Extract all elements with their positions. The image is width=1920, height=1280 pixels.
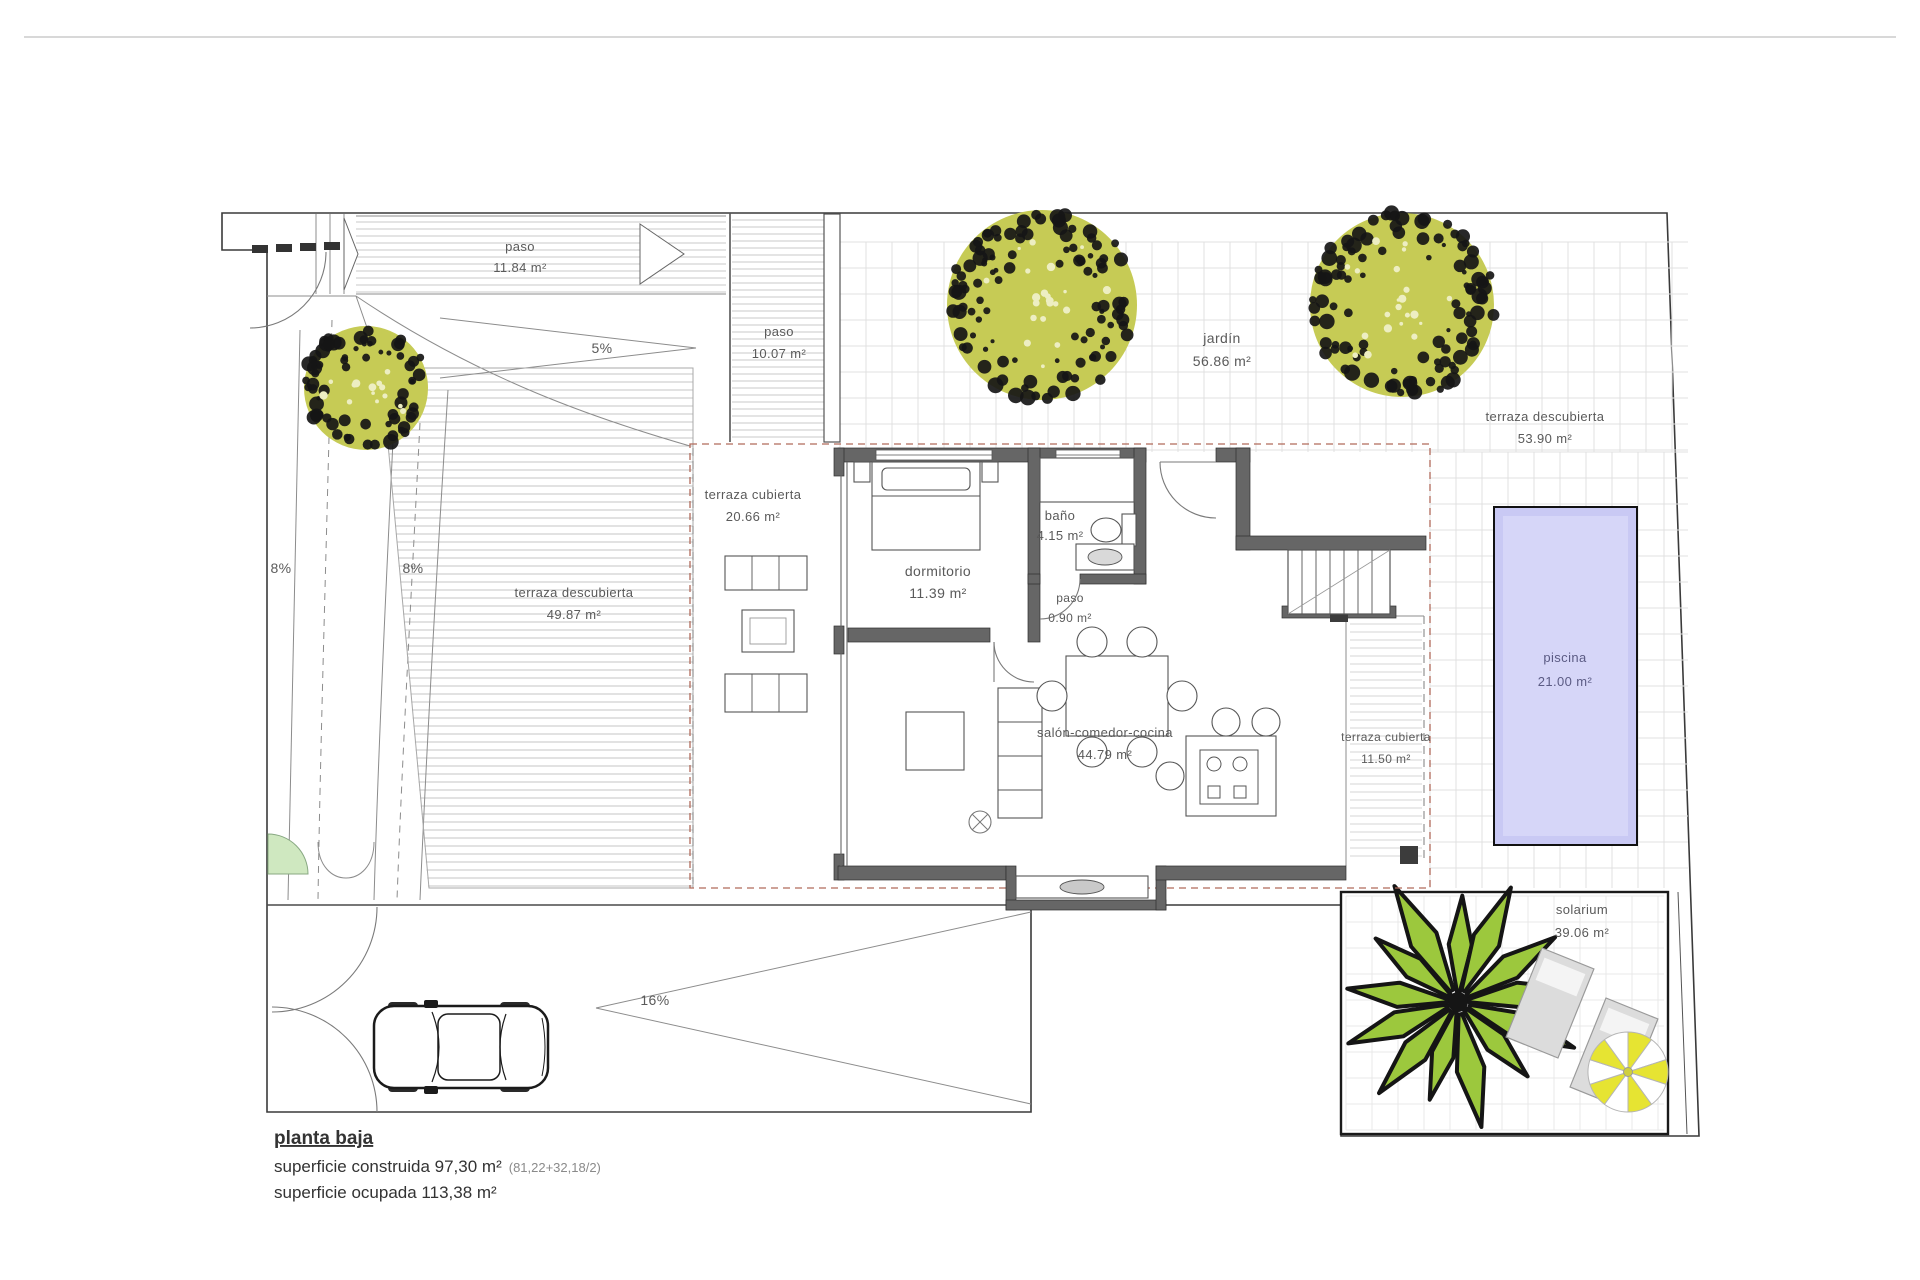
tree-speckle: [1339, 341, 1352, 354]
tree-speckle: [978, 360, 992, 374]
label-terraza-descubierta-oeste-area: 49.87 m²: [547, 607, 602, 622]
tree-speckle: [959, 343, 967, 351]
tree-speckle: [1097, 315, 1106, 324]
tree-speckle: [1319, 347, 1332, 360]
palm-trunk-center: [1448, 992, 1468, 1012]
tree-light-speckle: [329, 380, 334, 385]
occupied-area-line: superficie ocupada 113,38 m²: [274, 1183, 497, 1202]
nightstand-right: [982, 462, 998, 482]
tree-speckle: [1309, 316, 1320, 327]
bar-stool: [1252, 708, 1280, 736]
tree-speckle: [417, 354, 425, 362]
column-porch-south: [1400, 846, 1418, 864]
tree-light-speckle: [376, 380, 382, 386]
tree-speckle: [1116, 313, 1129, 326]
tree-speckle: [1456, 332, 1468, 344]
tree-speckle: [1454, 260, 1467, 273]
tree-light-speckle: [371, 391, 375, 395]
dining-chair: [1167, 681, 1197, 711]
tree-speckle: [362, 341, 367, 346]
tree-speckle: [983, 307, 990, 314]
tree-speckle: [1017, 214, 1031, 228]
tree-speckle: [1086, 328, 1095, 337]
label-paso-top-area: 11.84 m²: [493, 260, 547, 275]
tree-light-speckle: [1018, 247, 1021, 250]
tree-speckle: [1315, 294, 1329, 308]
tree-speckle: [1426, 377, 1435, 386]
tree-speckle: [1022, 228, 1034, 240]
tree-speckle: [326, 418, 338, 430]
label-piscina: piscina: [1543, 650, 1587, 665]
floor-title: planta baja: [274, 1128, 374, 1149]
tree-light-speckle: [1029, 239, 1035, 245]
tree-speckle: [1081, 336, 1088, 343]
tree-speckle: [1076, 358, 1086, 368]
tree-speckle: [1397, 389, 1404, 396]
tree-speckle: [1360, 272, 1366, 278]
tree-speckle: [1358, 254, 1367, 263]
built-area-note: (81,22+32,18/2): [509, 1160, 601, 1175]
tree-speckle: [951, 279, 958, 286]
label-terraza-cubierta-oeste: terraza cubierta: [705, 487, 802, 502]
bath-sink: [1088, 549, 1122, 565]
tree-speckle: [1012, 357, 1018, 363]
tree-speckle: [1068, 225, 1076, 233]
tree-speckle: [387, 430, 398, 441]
tree-light-speckle: [1047, 263, 1055, 271]
toilet-tank: [1122, 514, 1136, 546]
tree-speckle: [1111, 239, 1119, 247]
tree-light-speckle: [1053, 301, 1058, 306]
tree-light-speckle: [1447, 296, 1452, 301]
dining-chair: [1077, 627, 1107, 657]
tree-speckle: [301, 356, 316, 371]
tree-speckle: [1434, 233, 1444, 243]
tree-speckle: [990, 269, 996, 275]
label-paso-interior: paso: [1056, 591, 1084, 605]
tree-speckle: [973, 237, 983, 247]
label-jardin-area: 56.86 m²: [1193, 353, 1251, 369]
tree-speckle: [1004, 262, 1016, 274]
tree-speckle: [1344, 308, 1353, 317]
tree-speckle: [1453, 307, 1465, 319]
label-piscina-area: 21.00 m²: [1538, 674, 1593, 689]
tree-speckle: [360, 419, 371, 430]
label-bano-area: 4.15 m²: [1037, 528, 1084, 543]
tree-speckle: [1055, 358, 1060, 363]
tree-speckle: [1324, 242, 1336, 254]
tree-speckle: [1097, 263, 1108, 274]
bar-stool: [1212, 708, 1240, 736]
tree-light-speckle: [1405, 313, 1410, 318]
tree-speckle: [1476, 292, 1488, 304]
tree-speckle: [997, 356, 1009, 368]
wall-bedroom-east: [1028, 448, 1040, 642]
tree-speckle: [404, 360, 415, 371]
tree-light-speckle: [1411, 334, 1417, 340]
tree-speckle: [1089, 354, 1094, 359]
tree-speckle: [1417, 232, 1430, 245]
tree-speckle: [1381, 210, 1391, 220]
parasol-center: [1624, 1068, 1633, 1077]
tree-light-speckle: [1395, 304, 1401, 310]
porch-sofa-2: [725, 674, 807, 712]
gate-dash: [324, 242, 340, 250]
tree-speckle: [1121, 329, 1134, 342]
tree-speckle: [1050, 209, 1066, 225]
tree-speckle: [1107, 322, 1114, 329]
tree-light-speckle: [1041, 364, 1045, 368]
tree-speckle: [311, 411, 322, 422]
wall-west-stub-1: [834, 448, 844, 476]
tree-speckle: [1062, 371, 1072, 381]
tree-speckle: [332, 429, 343, 440]
tree-speckle: [1318, 272, 1332, 286]
tree-speckle: [1087, 233, 1097, 243]
tree-speckle: [408, 377, 416, 385]
tree-speckle: [1466, 326, 1477, 337]
dining-table: [1066, 656, 1168, 736]
tree-light-speckle: [375, 399, 379, 403]
tree-light-speckle: [319, 391, 327, 399]
tree-speckle: [1065, 386, 1080, 401]
tree-speckle: [1056, 260, 1064, 268]
tree-speckle: [1378, 247, 1386, 255]
label-ramp-16: 16%: [640, 992, 669, 1008]
tree-speckle: [954, 327, 968, 341]
tree-light-speckle: [352, 382, 358, 388]
tree-speckle: [1488, 309, 1500, 321]
tree-speckle: [995, 276, 1003, 284]
tree-speckle: [378, 350, 383, 355]
tree-speckle: [1097, 300, 1109, 312]
tree-speckle: [362, 354, 370, 362]
tree-speckle: [1100, 344, 1105, 349]
floor-plan-drawing: paso 11.84 m² paso 10.07 m² jardín 56.86…: [0, 0, 1920, 1280]
tree-light-speckle: [1025, 268, 1030, 273]
wall-south-b: [1156, 866, 1346, 880]
tree-light-speckle: [1372, 237, 1380, 245]
tree-speckle: [386, 351, 391, 356]
porch-sofa-1: [725, 556, 807, 590]
tree-speckle: [958, 281, 967, 290]
label-terraza-descubierta-este: terraza descubierta: [1486, 409, 1605, 424]
wall-bath-south-b: [1080, 574, 1146, 584]
kitchen-sink: [1060, 880, 1104, 894]
wall-bath-south-a: [1028, 574, 1040, 584]
tree-light-speckle: [984, 278, 990, 284]
label-ramp-8b: 8%: [402, 560, 423, 576]
tree-speckle: [1385, 380, 1398, 393]
tree-speckle: [1336, 255, 1346, 265]
wall-south-jut-bottom: [1006, 900, 1166, 910]
tree-speckle: [988, 377, 1004, 393]
tree-speckle: [367, 341, 373, 347]
tree-speckle: [353, 346, 358, 351]
tree-speckle: [1456, 229, 1470, 243]
tree-speckle: [1088, 253, 1094, 259]
tree-light-speckle: [1410, 311, 1418, 319]
tree-speckle: [1441, 376, 1455, 390]
tree-light-speckle: [1024, 340, 1031, 347]
tree-speckle: [982, 229, 995, 242]
label-salon-area: 44.79 m²: [1078, 747, 1133, 762]
gate-dash: [300, 243, 316, 251]
tree-light-speckle: [1384, 324, 1392, 332]
tree-speckle: [1451, 299, 1460, 308]
tree-speckle: [976, 316, 982, 322]
tree-speckle: [1063, 246, 1070, 253]
tree-light-speckle: [1063, 290, 1066, 293]
tree-light-speckle: [1394, 266, 1400, 272]
tree-speckle: [1340, 364, 1350, 374]
tree-speckle: [1443, 220, 1452, 229]
tree-speckle: [1417, 351, 1429, 363]
label-solarium-area: 39.06 m²: [1555, 925, 1610, 940]
tree-speckle: [970, 332, 976, 338]
corridor-east-pillar: [824, 214, 840, 442]
tree-speckle: [1471, 272, 1486, 287]
tree-light-speckle: [1054, 342, 1060, 348]
tree-speckle: [398, 427, 405, 434]
tree-speckle: [1442, 243, 1446, 247]
tree-speckle: [1433, 336, 1445, 348]
tree-light-speckle: [1364, 351, 1372, 359]
tree-speckle: [1464, 315, 1477, 328]
tree-speckle: [1390, 210, 1401, 221]
tree-speckle: [339, 414, 351, 426]
tree-speckle: [1330, 302, 1338, 310]
tree-speckle: [1008, 250, 1017, 259]
tree-speckle: [323, 338, 335, 350]
tree-speckle: [1368, 215, 1379, 226]
tree-speckle: [990, 339, 994, 343]
tree-speckle: [957, 271, 967, 281]
floor-plan-page: paso 11.84 m² paso 10.07 m² jardín 56.86…: [0, 0, 1920, 1280]
tree-speckle: [1114, 252, 1128, 266]
stairs: [1288, 550, 1390, 614]
tree-speckle: [1331, 269, 1342, 280]
gate-dash: [276, 244, 292, 252]
label-salon: salón-comedor-cocina: [1037, 725, 1173, 740]
label-terraza-cubierta-este-area: 11.50 m²: [1361, 752, 1411, 766]
label-dormitorio-area: 11.39 m²: [909, 585, 966, 601]
tree-speckle: [968, 308, 976, 316]
tree-speckle: [342, 354, 349, 361]
car-mirror: [424, 1000, 438, 1008]
tree-speckle: [994, 234, 1002, 242]
tree-light-speckle: [1345, 264, 1351, 270]
tree-speckle: [1105, 351, 1116, 362]
tree-speckle: [976, 297, 984, 305]
tree-speckle: [302, 377, 310, 385]
gate-dash: [252, 245, 268, 253]
tree-speckle: [406, 412, 417, 423]
tree-light-speckle: [385, 369, 391, 375]
tree-speckle: [983, 347, 988, 352]
bath-closet: [1040, 458, 1134, 502]
tree-speckle: [1346, 237, 1362, 253]
dining-chair: [1127, 627, 1157, 657]
tree-speckle: [1418, 212, 1431, 225]
tree-speckle: [981, 260, 987, 266]
tree-light-speckle: [347, 399, 352, 404]
wall-bedroom-south: [848, 628, 990, 642]
tree-speckle: [1390, 220, 1402, 232]
tree-speckle: [1319, 314, 1334, 329]
tree-light-speckle: [1046, 297, 1054, 305]
tree-speckle: [973, 279, 982, 288]
tree-speckle: [344, 434, 351, 441]
tree-speckle: [1364, 373, 1379, 388]
tree-light-speckle: [1030, 315, 1036, 321]
tree-light-speckle: [1033, 300, 1040, 307]
tree-speckle: [1008, 388, 1024, 404]
label-jardin: jardín: [1202, 330, 1240, 346]
tree-speckle: [1446, 328, 1450, 332]
tree-speckle: [1449, 362, 1456, 369]
tree-light-speckle: [1355, 268, 1360, 273]
tree-speckle: [409, 402, 419, 412]
tree-light-speckle: [1352, 352, 1358, 358]
tree-speckle: [1071, 333, 1079, 341]
tree-light-speckle: [1403, 287, 1409, 293]
label-terraza-descubierta-oeste: terraza descubierta: [515, 585, 634, 600]
tree-light-speckle: [1399, 322, 1403, 326]
tree-speckle: [1083, 267, 1092, 276]
tree-light-speckle: [1103, 286, 1111, 294]
tree-speckle: [1004, 228, 1016, 240]
tree-speckle: [1391, 368, 1397, 374]
bed-pillow: [882, 468, 970, 490]
label-bano: baño: [1045, 508, 1076, 523]
tree-speckle: [1069, 244, 1077, 252]
wall-entry-east: [1236, 448, 1250, 550]
label-paso-corridor: paso: [764, 324, 794, 339]
label-terraza-descubierta-este-area: 53.90 m²: [1518, 431, 1573, 446]
tree-speckle: [1315, 266, 1323, 274]
tree-light-speckle: [369, 383, 377, 391]
nightstand-left: [854, 462, 870, 482]
wall-west-stub-2: [834, 626, 844, 654]
tree-speckle: [963, 259, 976, 272]
tree-speckle: [1469, 341, 1476, 348]
tree-light-speckle: [1362, 332, 1369, 339]
tree-speckle: [1077, 257, 1086, 266]
tree-speckle: [389, 413, 400, 424]
tree-light-speckle: [1384, 312, 1390, 318]
tree-speckle: [342, 363, 350, 371]
label-paso-top: paso: [505, 239, 535, 254]
tree-light-speckle: [1419, 322, 1422, 325]
car: [374, 1000, 548, 1094]
tree-light-speckle: [1398, 295, 1406, 303]
tree-light-speckle: [398, 404, 403, 409]
tree-speckle: [397, 352, 405, 360]
label-ramp-5: 5%: [591, 340, 612, 356]
tree-light-speckle: [1402, 247, 1406, 251]
tree-speckle: [983, 248, 995, 260]
tree-light-speckle: [1080, 245, 1084, 249]
tree-speckle: [1048, 385, 1060, 397]
tree-speckle: [363, 326, 374, 337]
parasol-group: [1588, 1032, 1668, 1112]
tree-light-speckle: [382, 393, 387, 398]
tree-speckle: [1435, 364, 1444, 373]
dining-chair: [1037, 681, 1067, 711]
tree-speckle: [1466, 311, 1472, 317]
wall-south-a: [838, 866, 1006, 880]
tree-light-speckle: [400, 408, 406, 414]
tree-light-speckle: [1063, 307, 1070, 314]
living-sofa: [998, 688, 1042, 818]
label-paso-interior-area: 0.90 m²: [1048, 611, 1091, 625]
built-area-label: superficie construida 97,30 m²: [274, 1157, 502, 1176]
label-ramp-8a: 8%: [270, 560, 291, 576]
tree-speckle: [1095, 374, 1106, 385]
solarium-court: [1341, 886, 1687, 1134]
bar-stool: [1156, 762, 1184, 790]
tree-light-speckle: [1402, 241, 1407, 246]
tree-speckle: [1403, 379, 1412, 388]
toilet-bowl: [1091, 518, 1121, 542]
tree-speckle: [304, 383, 312, 391]
tree-light-speckle: [1040, 316, 1044, 320]
tree-speckle: [1426, 255, 1432, 261]
label-terraza-cubierta-este: terraza cubierta: [1341, 730, 1431, 744]
label-solarium: solarium: [1556, 902, 1608, 917]
car-mirror: [424, 1086, 438, 1094]
built-area-line: superficie construida 97,30 m²(81,22+32,…: [274, 1157, 601, 1176]
label-paso-corridor-area: 10.07 m²: [752, 346, 807, 361]
car-body: [374, 1006, 548, 1088]
tree-speckle: [391, 338, 405, 352]
tree-speckle: [1092, 273, 1097, 278]
tree-speckle: [946, 304, 960, 318]
wall-north-living: [1236, 536, 1426, 550]
label-dormitorio: dormitorio: [905, 563, 971, 579]
tree-speckle: [363, 440, 373, 450]
label-terraza-cubierta-oeste-area: 20.66 m²: [726, 509, 781, 524]
armchair: [906, 712, 964, 770]
tree-speckle: [1031, 210, 1041, 220]
tree-speckle: [1102, 337, 1110, 345]
